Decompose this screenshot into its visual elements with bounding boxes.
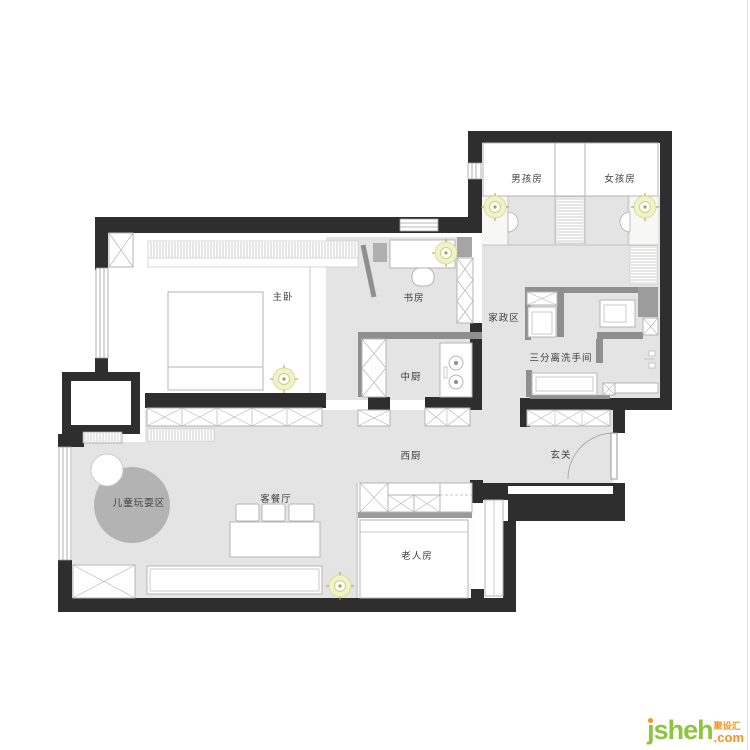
closet-pocket [485, 500, 503, 596]
label-boys-room: 男孩房 [511, 173, 543, 185]
wardrobe-elderly [360, 483, 472, 512]
bed-boys [483, 143, 555, 196]
cabinet-bath-2 [603, 383, 658, 395]
shower-bench [600, 300, 635, 327]
dining-set [230, 504, 320, 557]
page-edge-line [747, 0, 748, 750]
watermark-domain-suffix: .com [714, 731, 744, 744]
wardrobe-girls [631, 247, 656, 283]
bed-girls [585, 143, 658, 196]
cabinet-corridor-right [425, 408, 470, 426]
label-elderly-room: 老人房 [401, 550, 433, 562]
label-chinese-kitchen: 中厨 [400, 371, 421, 383]
label-west-kitchen: 西厨 [400, 451, 421, 462]
window-play-left [59, 447, 71, 560]
watermark: jsheh 聚设汇 .com [647, 717, 744, 744]
watermark-brand: jsheh [647, 717, 713, 744]
column-shaft [109, 233, 133, 267]
label-play-area: 儿童玩耍区 [113, 497, 166, 509]
label-entry: 玄关 [550, 449, 571, 461]
floor-plan: 主卧 书房 中厨 西厨 玄关 家政区 三分离洗手间 男孩房 女孩房 儿童玩耍区 … [0, 0, 750, 750]
label-housekeeping: 家政区 [488, 312, 520, 324]
window-wing-left [468, 163, 481, 179]
label-girls-room: 女孩房 [604, 173, 636, 185]
cabinet-row-master [147, 408, 322, 426]
curtain-master [149, 242, 357, 257]
curtain-play [149, 430, 213, 440]
dining-chair [289, 504, 314, 521]
nightstand-kids [555, 143, 585, 196]
bed-master [168, 292, 263, 390]
play-stool [91, 454, 123, 486]
wardrobe-kids [557, 198, 583, 242]
label-bathroom: 三分离洗手间 [529, 352, 592, 364]
label-master-bedroom: 主卧 [272, 291, 293, 303]
cabinet-corridor-left [358, 410, 390, 426]
cabinet-bath-1 [643, 318, 658, 335]
label-living-dining: 客餐厅 [260, 493, 292, 505]
dining-table [230, 522, 320, 557]
sofa [147, 566, 322, 594]
window-box-bottom-left [73, 565, 135, 598]
light-master [270, 365, 298, 393]
dining-chair [236, 504, 259, 521]
window-master-left [96, 268, 108, 358]
label-study: 书房 [403, 292, 424, 304]
cabinet-study [457, 258, 473, 323]
window-platform [83, 432, 122, 443]
chair-study [412, 268, 434, 286]
dining-chair [262, 504, 285, 521]
window-study-top [400, 219, 438, 231]
washer [527, 292, 557, 337]
vanity-sink [532, 373, 597, 395]
cabinet-shoes-entry [527, 410, 610, 426]
